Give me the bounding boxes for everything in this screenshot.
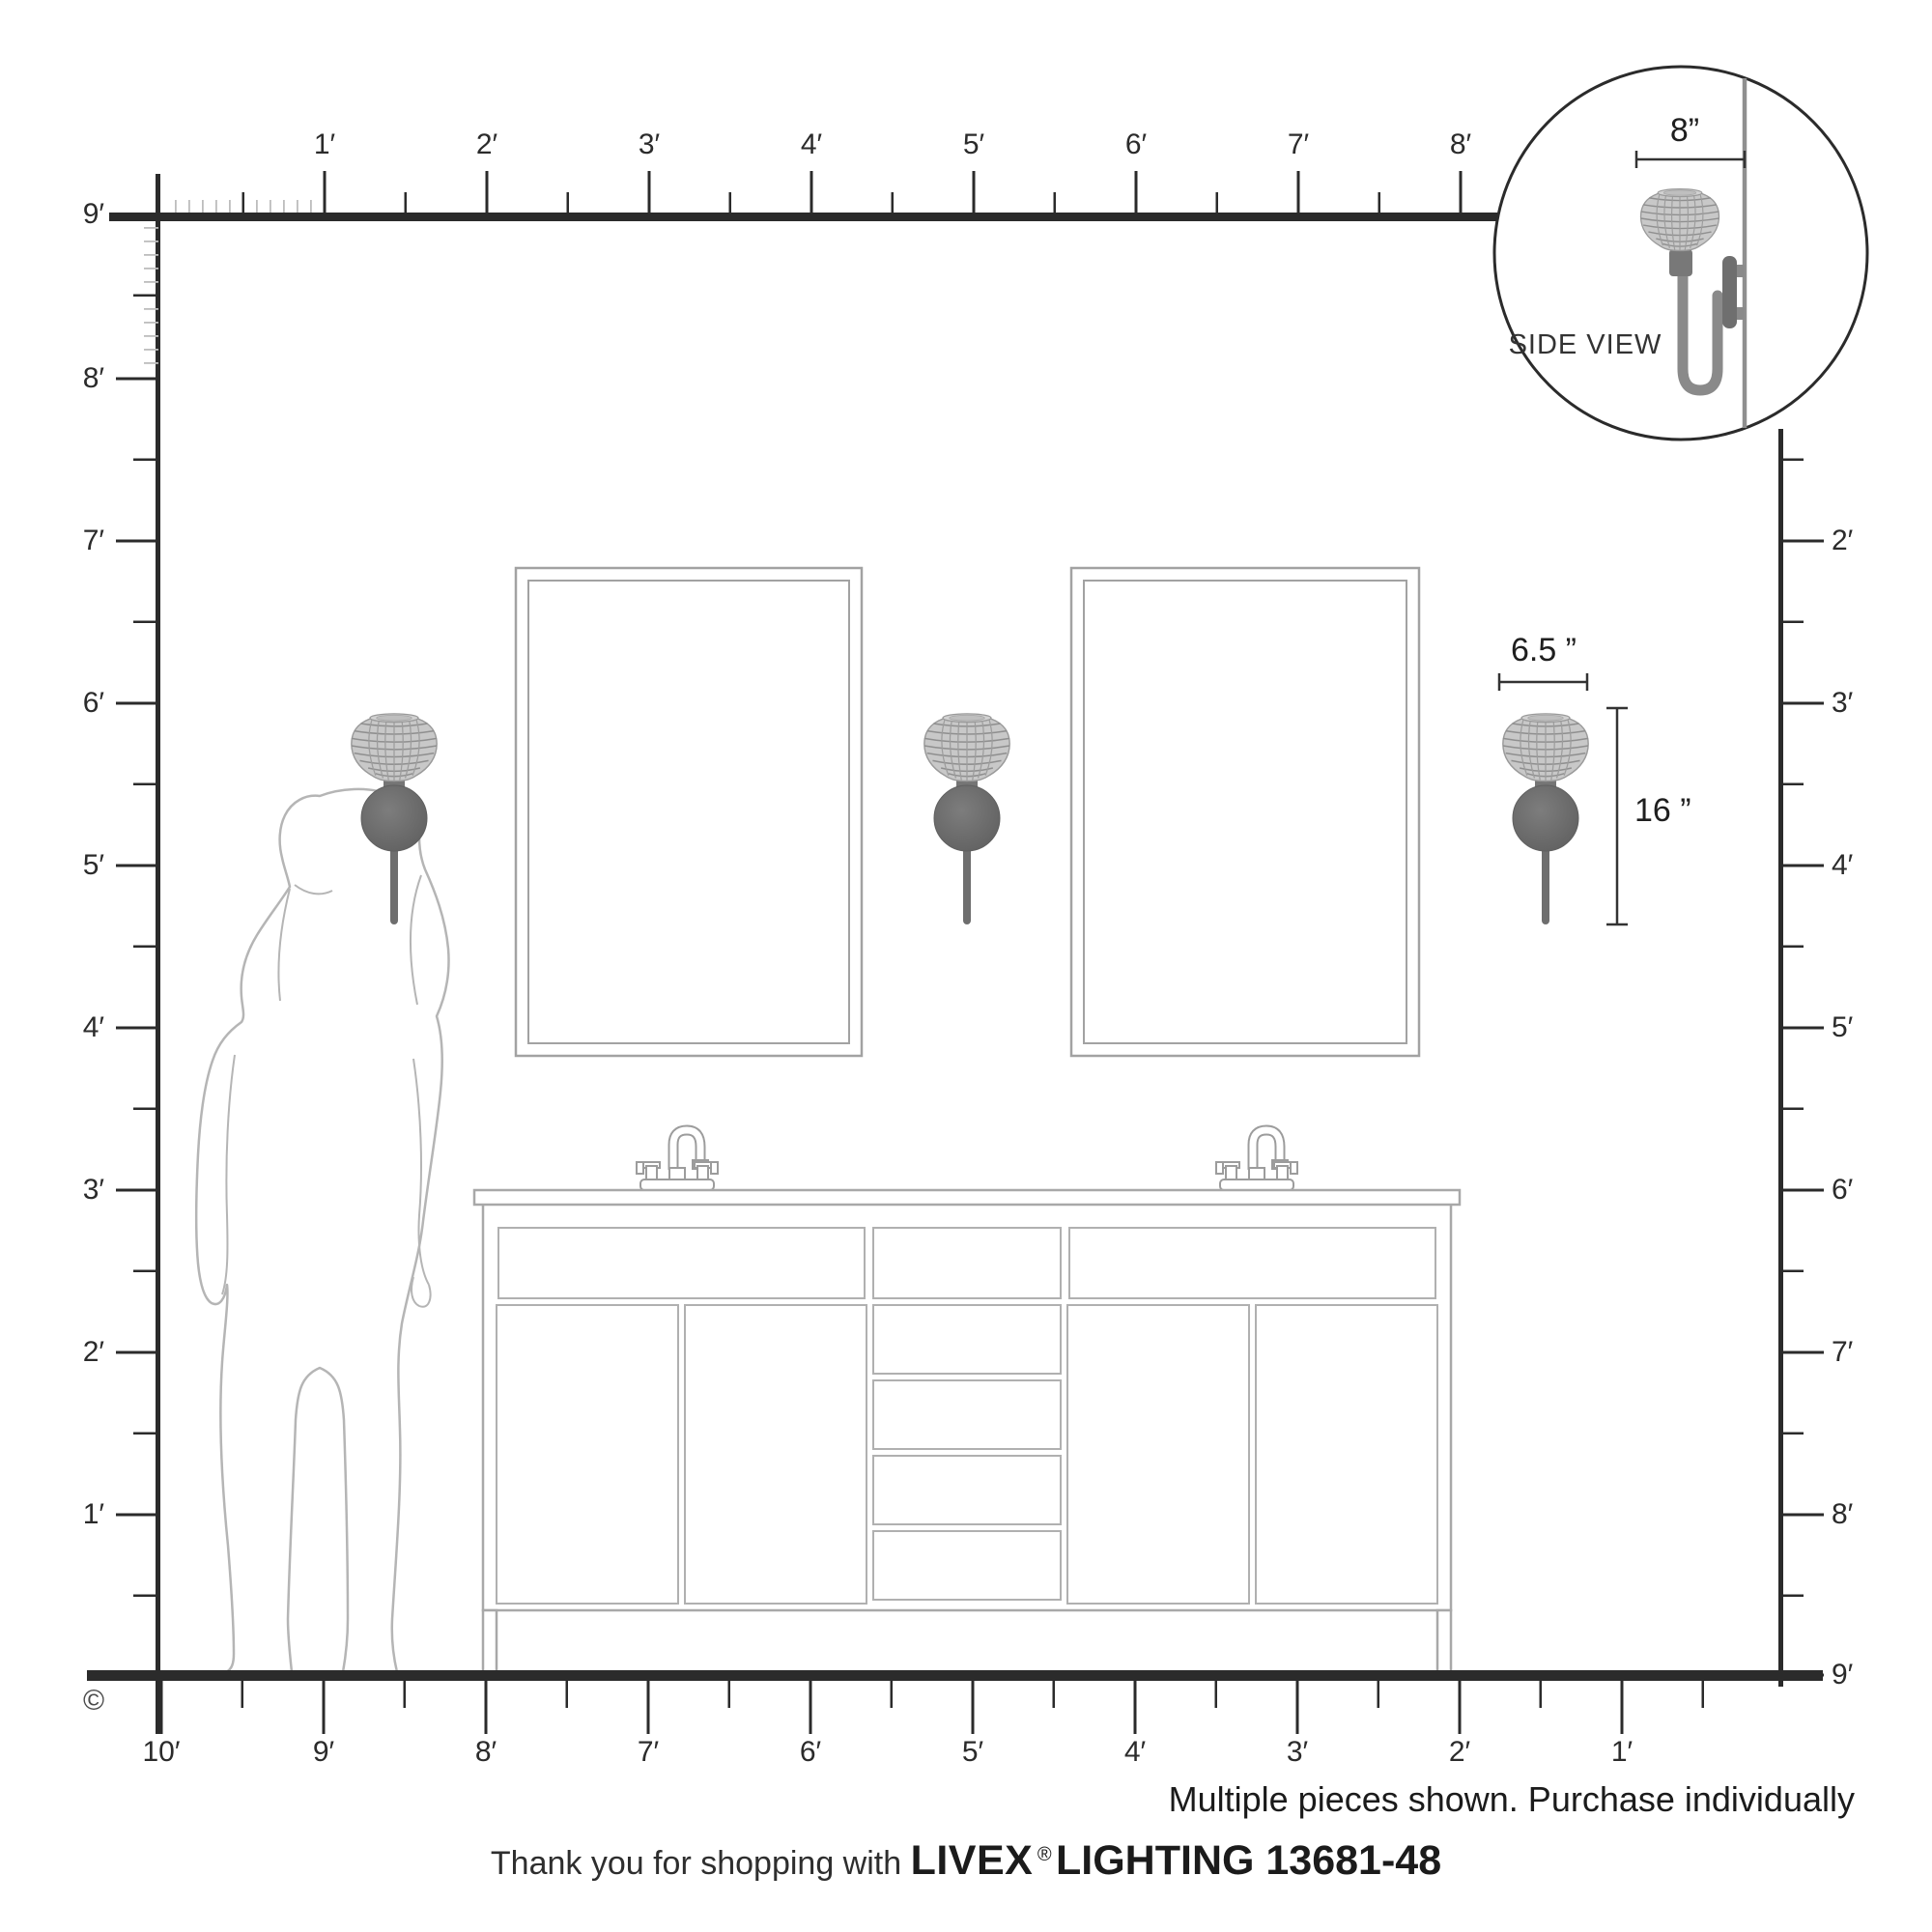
fixture-height-dimension: 16 ” — [1634, 790, 1770, 831]
purchase-notice: Multiple pieces shown. Purchase individu… — [1082, 1779, 1855, 1820]
top-ruler-label: 4′ — [773, 126, 850, 164]
bottom-ruler-label: 8′ — [442, 1733, 529, 1772]
floor-ruler — [87, 1670, 1823, 1734]
left-ruler-label: 9′ — [37, 195, 104, 234]
top-ruler-label: 3′ — [611, 126, 688, 164]
vanity — [474, 1190, 1460, 1672]
left-ruler-label: 6′ — [37, 684, 104, 723]
mirror-2 — [1071, 568, 1419, 1056]
scene-graphics — [0, 0, 1932, 1932]
top-ruler-label: 2′ — [448, 126, 526, 164]
footer-prefix: Thank you for shopping with — [491, 1845, 911, 1882]
left-ruler-label: 3′ — [37, 1171, 104, 1209]
left-ruler-label: 8′ — [37, 359, 104, 398]
dimension-fixture-height — [1606, 708, 1628, 924]
shade-width-dimension: 6.5 ” — [1466, 630, 1621, 670]
top-ruler-label: 8′ — [1422, 126, 1499, 164]
left-ruler-label: 2′ — [37, 1333, 104, 1372]
right-ruler-label: 6′ — [1832, 1171, 1909, 1209]
depth-dimension: 8” — [1636, 110, 1733, 151]
top-ruler-label: 6′ — [1097, 126, 1175, 164]
right-ruler-label: 3′ — [1832, 684, 1909, 723]
bottom-ruler-label: 2′ — [1416, 1733, 1503, 1772]
left-ruler-label: 5′ — [37, 846, 104, 885]
copyright-mark: © — [83, 1685, 104, 1718]
wall-sconce-2 — [924, 714, 1009, 924]
footer-line: Thank you for shopping with LIVEX ® LIGH… — [0, 1837, 1932, 1885]
top-ruler-label: 7′ — [1260, 126, 1337, 164]
right-ruler-label: 9′ — [1832, 1656, 1909, 1694]
faucet-2 — [1216, 1130, 1297, 1190]
right-ruler-label: 7′ — [1832, 1333, 1909, 1372]
right-ruler-label: 8′ — [1832, 1495, 1909, 1534]
brand-name: LIVEX — [911, 1837, 1034, 1884]
left-ruler-label: 4′ — [37, 1009, 104, 1047]
bottom-ruler-label: 7′ — [605, 1733, 692, 1772]
left-ruler — [116, 174, 160, 1734]
bottom-ruler-label: 9′ — [280, 1733, 367, 1772]
mirror-1 — [516, 568, 862, 1056]
footer-model-number: LIGHTING 13681-48 — [1056, 1837, 1441, 1884]
left-ruler-label: 7′ — [37, 522, 104, 560]
right-ruler — [1778, 429, 1824, 1687]
wall-sconce-3 — [1503, 714, 1588, 924]
registered-mark-icon: ® — [1037, 1844, 1052, 1865]
diagram-canvas: 1′ 2′ 3′ 4′ 5′ 6′ 7′ 8′ 9′ 8′ 7′ 6′ 5′ 4… — [0, 0, 1932, 1932]
female-silhouette — [196, 789, 448, 1672]
bottom-ruler-label: 6′ — [767, 1733, 854, 1772]
side-view-label: SIDE VIEW — [1469, 327, 1701, 363]
left-ruler-label: 1′ — [37, 1495, 104, 1534]
bottom-ruler-label: 10′ — [118, 1733, 205, 1772]
top-ruler-label: 1′ — [286, 126, 363, 164]
bottom-ruler-label: 3′ — [1254, 1733, 1341, 1772]
right-ruler-label: 4′ — [1832, 846, 1909, 885]
top-ruler-label: 5′ — [935, 126, 1012, 164]
bottom-ruler-label: 5′ — [929, 1733, 1016, 1772]
bottom-ruler-label: 4′ — [1092, 1733, 1179, 1772]
faucet-1 — [637, 1130, 718, 1190]
right-ruler-label: 2′ — [1832, 522, 1909, 560]
bottom-ruler-label: 1′ — [1578, 1733, 1665, 1772]
right-ruler-label: 5′ — [1832, 1009, 1909, 1047]
dimension-shade-width — [1499, 673, 1587, 691]
top-ruler — [109, 171, 1497, 221]
